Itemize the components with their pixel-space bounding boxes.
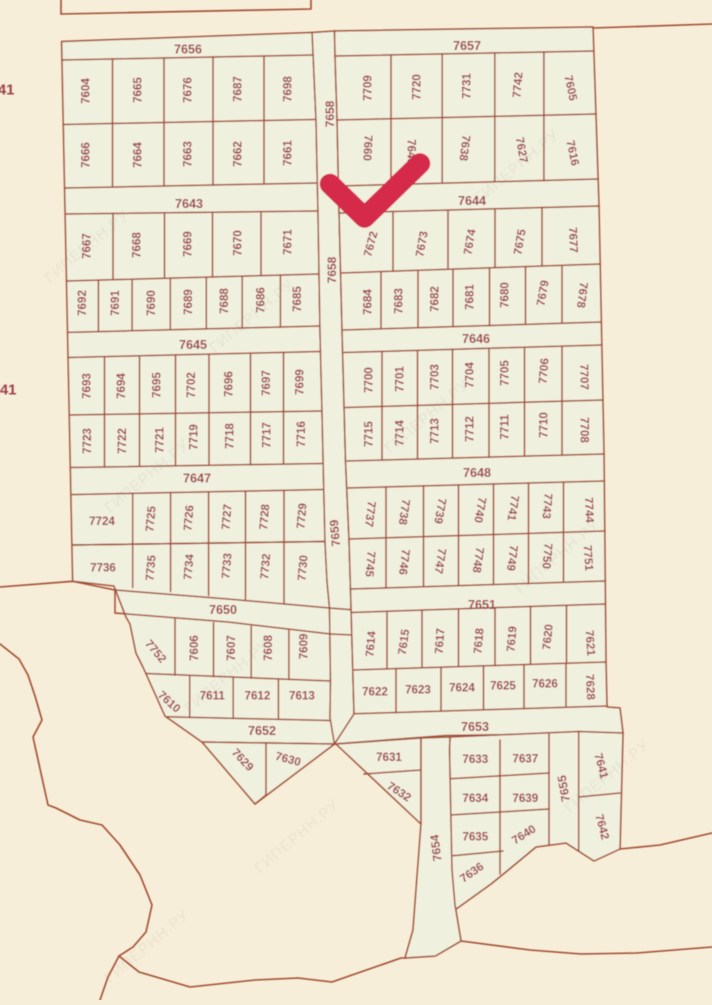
svg-text:7681: 7681 [464, 284, 477, 310]
svg-text:7727: 7727 [219, 504, 234, 531]
svg-text:7614: 7614 [363, 630, 378, 657]
svg-text:7668: 7668 [131, 232, 144, 258]
svg-text:7609: 7609 [298, 633, 311, 659]
svg-text:7695: 7695 [151, 372, 164, 398]
svg-text:7701: 7701 [394, 366, 407, 392]
svg-text:7646: 7646 [462, 332, 490, 346]
svg-text:7716: 7716 [295, 421, 308, 447]
svg-text:7663: 7663 [182, 141, 195, 167]
svg-text:7671: 7671 [282, 229, 295, 255]
svg-text:7621: 7621 [583, 630, 598, 657]
svg-text:7619: 7619 [504, 625, 519, 652]
svg-text:7661: 7661 [282, 140, 295, 166]
svg-text:7689: 7689 [182, 289, 195, 315]
svg-text:7651: 7651 [468, 598, 496, 612]
svg-text:7682: 7682 [429, 286, 442, 312]
svg-text:7652: 7652 [248, 724, 276, 738]
svg-text:7725: 7725 [143, 505, 158, 532]
svg-text:7699: 7699 [294, 369, 307, 395]
svg-text:7721: 7721 [154, 427, 167, 453]
svg-text:7734: 7734 [181, 553, 196, 580]
svg-text:7618: 7618 [471, 627, 486, 654]
svg-text:7606: 7606 [188, 635, 201, 661]
svg-text:7703: 7703 [429, 364, 442, 390]
svg-text:7617: 7617 [433, 628, 448, 655]
svg-text:7626: 7626 [532, 678, 558, 691]
svg-text:7688: 7688 [218, 288, 231, 314]
svg-text:7742: 7742 [510, 72, 525, 99]
svg-text:7718: 7718 [224, 423, 237, 449]
svg-text:7733: 7733 [219, 552, 234, 579]
svg-text:7666: 7666 [80, 142, 93, 168]
svg-text:7612: 7612 [245, 689, 271, 702]
svg-text:7726: 7726 [181, 504, 196, 531]
svg-text:7720: 7720 [411, 74, 424, 100]
svg-text:741: 741 [0, 382, 17, 399]
svg-text:7650: 7650 [209, 603, 237, 617]
svg-text:7634: 7634 [462, 792, 488, 805]
svg-text:7745: 7745 [362, 551, 377, 578]
svg-text:7696: 7696 [223, 371, 236, 397]
svg-text:7694: 7694 [115, 373, 128, 399]
svg-text:7732: 7732 [258, 553, 273, 580]
svg-text:7692: 7692 [76, 290, 89, 316]
svg-text:7706: 7706 [536, 357, 551, 384]
svg-text:7743: 7743 [539, 493, 554, 520]
svg-text:7693: 7693 [81, 373, 94, 399]
svg-text:7604: 7604 [80, 78, 93, 104]
svg-text:7635: 7635 [462, 831, 488, 844]
svg-text:7723: 7723 [81, 428, 94, 454]
svg-text:7633: 7633 [462, 753, 488, 766]
svg-text:7702: 7702 [185, 372, 198, 398]
svg-text:7662: 7662 [232, 141, 245, 167]
svg-text:7709: 7709 [362, 75, 375, 101]
svg-text:7639: 7639 [512, 792, 538, 805]
svg-text:7643: 7643 [175, 197, 203, 211]
svg-text:7659: 7659 [327, 519, 343, 547]
svg-text:7697: 7697 [260, 370, 273, 396]
svg-text:7620: 7620 [540, 623, 556, 650]
svg-text:7658: 7658 [323, 100, 337, 127]
svg-text:7711: 7711 [499, 414, 512, 440]
svg-text:7730: 7730 [295, 555, 310, 582]
svg-text:7613: 7613 [289, 689, 315, 702]
svg-text:7684: 7684 [362, 289, 375, 315]
svg-text:7656: 7656 [174, 43, 202, 57]
svg-text:7677: 7677 [566, 227, 580, 253]
svg-text:7736: 7736 [90, 562, 116, 575]
svg-text:7647: 7647 [183, 472, 211, 486]
svg-text:7624: 7624 [449, 682, 475, 695]
svg-text:7623: 7623 [405, 684, 431, 697]
svg-text:7625: 7625 [490, 680, 516, 693]
svg-text:7722: 7722 [116, 428, 129, 454]
svg-text:7728: 7728 [257, 503, 272, 530]
svg-text:7687: 7687 [232, 76, 245, 102]
svg-text:7622: 7622 [362, 686, 388, 699]
svg-text:7700: 7700 [363, 367, 376, 393]
svg-text:7705: 7705 [499, 360, 512, 386]
svg-text:7698: 7698 [282, 76, 295, 102]
svg-text:7680: 7680 [499, 282, 512, 308]
svg-text:741: 741 [0, 82, 15, 99]
svg-text:7717: 7717 [261, 422, 274, 448]
svg-text:7715: 7715 [363, 421, 376, 447]
svg-text:7710: 7710 [538, 412, 551, 438]
svg-text:7645: 7645 [179, 338, 207, 352]
svg-text:7631: 7631 [376, 751, 402, 764]
svg-text:7660: 7660 [360, 135, 374, 161]
svg-text:7707: 7707 [577, 364, 590, 390]
svg-text:7683: 7683 [393, 288, 406, 314]
svg-text:7712: 7712 [464, 416, 477, 442]
svg-text:7670: 7670 [232, 230, 245, 256]
svg-text:7648: 7648 [463, 466, 491, 480]
svg-text:7657: 7657 [453, 39, 481, 53]
svg-text:7691: 7691 [109, 290, 122, 316]
svg-text:7731: 7731 [461, 73, 474, 99]
svg-text:7676: 7676 [182, 77, 195, 103]
svg-text:7708: 7708 [578, 417, 591, 443]
svg-text:7658: 7658 [325, 256, 339, 283]
svg-text:7669: 7669 [182, 231, 195, 257]
svg-text:7653: 7653 [461, 720, 489, 734]
svg-text:7665: 7665 [132, 77, 145, 103]
svg-text:7735: 7735 [143, 554, 158, 581]
svg-text:7751: 7751 [581, 545, 596, 572]
svg-text:7637: 7637 [512, 753, 538, 766]
svg-text:7729: 7729 [294, 502, 309, 529]
svg-text:7664: 7664 [132, 142, 145, 168]
svg-text:7690: 7690 [145, 290, 158, 316]
svg-text:7628: 7628 [583, 674, 597, 701]
